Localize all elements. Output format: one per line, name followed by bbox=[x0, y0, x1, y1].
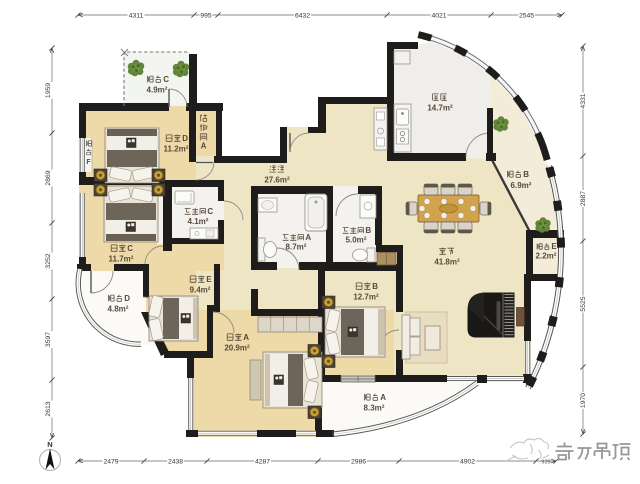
svg-text:5525: 5525 bbox=[580, 296, 587, 311]
svg-text:939: 939 bbox=[541, 459, 550, 465]
svg-text:A: A bbox=[305, 233, 311, 242]
svg-text:4021: 4021 bbox=[431, 12, 446, 19]
svg-text:4902: 4902 bbox=[460, 458, 475, 465]
svg-text:2438: 2438 bbox=[168, 458, 183, 465]
svg-text:4.9m²: 4.9m² bbox=[147, 86, 168, 95]
svg-text:3252: 3252 bbox=[45, 253, 52, 268]
svg-text:B: B bbox=[523, 170, 529, 179]
svg-text:6.9m²: 6.9m² bbox=[511, 181, 532, 190]
svg-text:4331: 4331 bbox=[580, 93, 587, 108]
svg-text:1959: 1959 bbox=[45, 83, 52, 98]
svg-text:C: C bbox=[163, 75, 169, 84]
svg-text:11.7m²: 11.7m² bbox=[109, 255, 134, 264]
svg-text:8.7m²: 8.7m² bbox=[286, 243, 307, 252]
svg-text:2545: 2545 bbox=[519, 12, 534, 19]
svg-text:11.2m²: 11.2m² bbox=[164, 145, 189, 154]
svg-text:8.3m²: 8.3m² bbox=[364, 404, 385, 413]
svg-text:A: A bbox=[243, 333, 249, 342]
svg-text:12.7m²: 12.7m² bbox=[353, 293, 379, 302]
svg-text:D: D bbox=[124, 294, 130, 303]
svg-text:995: 995 bbox=[200, 12, 212, 19]
svg-text:F: F bbox=[86, 159, 91, 166]
svg-text:N: N bbox=[47, 440, 52, 449]
svg-text:2479: 2479 bbox=[103, 458, 118, 465]
svg-text:A: A bbox=[380, 393, 386, 402]
svg-text:C: C bbox=[207, 207, 213, 216]
svg-text:2887: 2887 bbox=[580, 191, 587, 206]
svg-text:4311: 4311 bbox=[129, 12, 144, 19]
svg-text:3597: 3597 bbox=[45, 332, 52, 347]
svg-text:27.6m²: 27.6m² bbox=[264, 176, 290, 185]
svg-text:D: D bbox=[182, 134, 188, 143]
svg-text:5.0m²: 5.0m² bbox=[346, 236, 367, 245]
svg-text:4.1m²: 4.1m² bbox=[188, 217, 209, 226]
svg-text:B: B bbox=[365, 226, 371, 235]
svg-text:1970: 1970 bbox=[580, 393, 587, 408]
svg-text:4287: 4287 bbox=[255, 458, 270, 465]
svg-text:B: B bbox=[372, 282, 378, 291]
svg-text:9.4m²: 9.4m² bbox=[190, 286, 211, 295]
svg-text:4.8m²: 4.8m² bbox=[108, 305, 129, 314]
svg-text:2986: 2986 bbox=[351, 458, 366, 465]
svg-text:20.9m²: 20.9m² bbox=[224, 344, 250, 353]
svg-text:2869: 2869 bbox=[45, 170, 52, 185]
svg-text:E: E bbox=[551, 242, 557, 251]
svg-text:2.2m²: 2.2m² bbox=[536, 252, 557, 261]
svg-text:6432: 6432 bbox=[295, 12, 310, 19]
svg-text:A: A bbox=[201, 142, 207, 151]
svg-text:C: C bbox=[127, 244, 133, 253]
svg-text:14.7m²: 14.7m² bbox=[427, 104, 453, 113]
svg-text:E: E bbox=[206, 275, 212, 284]
svg-text:41.8m²: 41.8m² bbox=[434, 258, 460, 267]
svg-text:2613: 2613 bbox=[45, 401, 52, 416]
